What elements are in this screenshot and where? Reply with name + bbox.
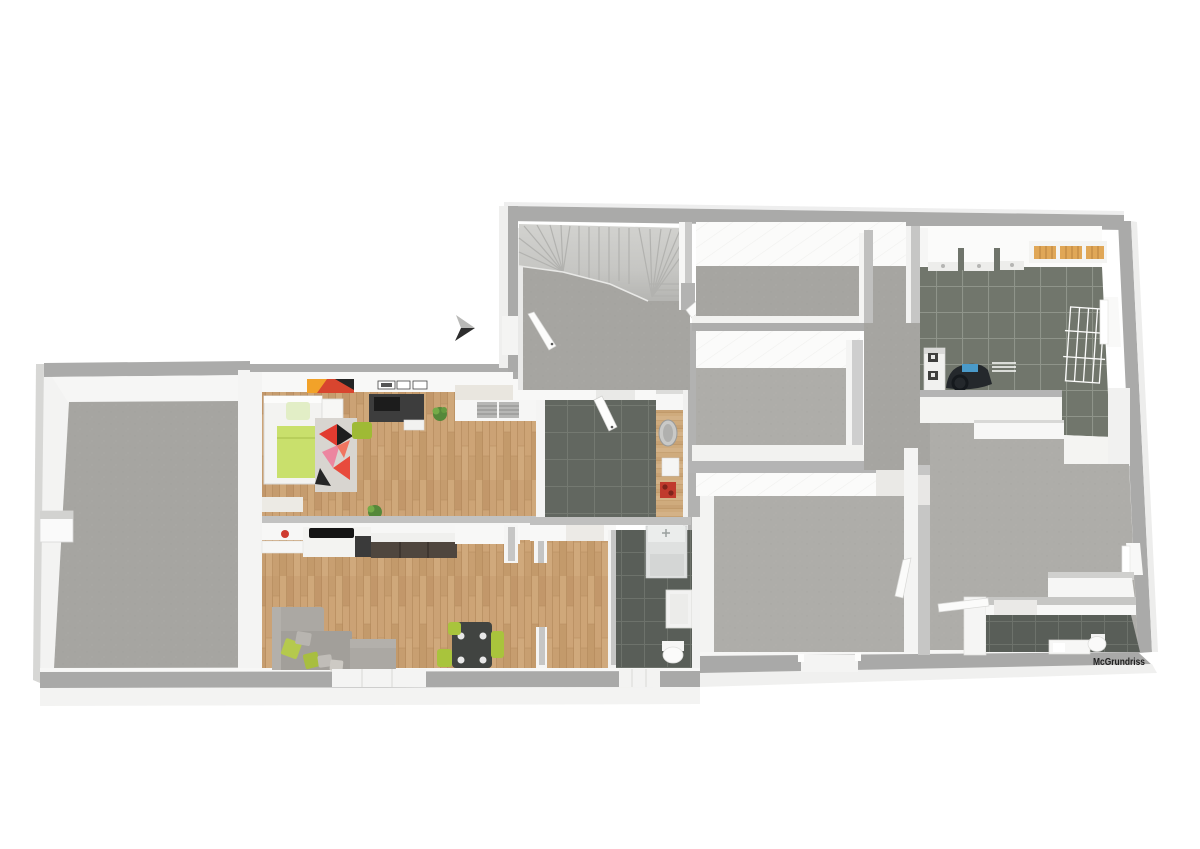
svg-text:McGrundriss: McGrundriss [1093,657,1145,668]
